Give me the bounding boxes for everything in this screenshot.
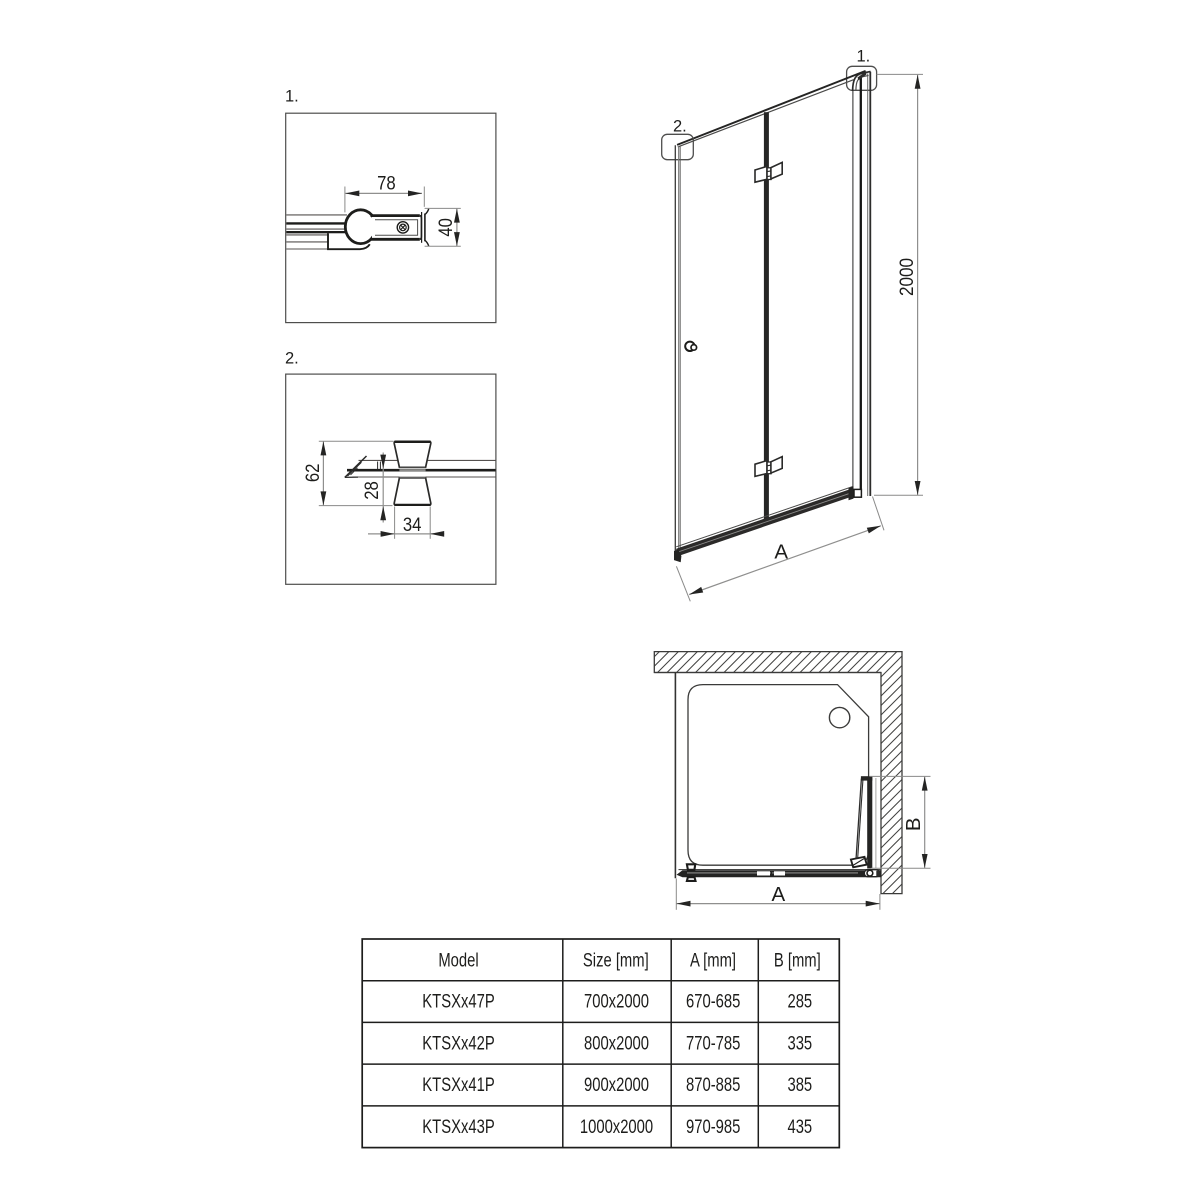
svg-text:2.: 2. [673,118,687,136]
svg-text:62: 62 [302,464,323,483]
svg-text:A: A [774,540,788,563]
svg-text:2.: 2. [285,350,299,368]
svg-text:Model: Model [438,950,478,971]
svg-text:1000x2000: 1000x2000 [580,1116,653,1137]
svg-text:B: B [902,817,925,831]
svg-text:335: 335 [787,1033,812,1054]
svg-text:435: 435 [787,1116,812,1137]
svg-text:970-985: 970-985 [686,1116,740,1137]
svg-text:1.: 1. [857,48,871,66]
svg-text:Size [mm]: Size [mm] [583,950,649,971]
svg-text:700x2000: 700x2000 [584,991,649,1012]
svg-text:KTSXx43P: KTSXx43P [422,1116,494,1137]
svg-text:385: 385 [787,1074,812,1095]
svg-text:28: 28 [361,481,382,500]
svg-text:KTSXx42P: KTSXx42P [422,1033,494,1054]
svg-text:770-785: 770-785 [686,1033,740,1054]
svg-text:A: A [771,883,785,906]
svg-text:670-685: 670-685 [686,991,740,1012]
svg-text:78: 78 [377,172,396,193]
svg-text:870-885: 870-885 [686,1074,740,1095]
svg-text:2000: 2000 [896,258,917,296]
svg-text:1.: 1. [285,88,299,106]
svg-text:A [mm]: A [mm] [690,950,736,971]
svg-text:KTSXx41P: KTSXx41P [422,1074,494,1095]
svg-text:B [mm]: B [mm] [774,950,821,971]
svg-text:900x2000: 900x2000 [584,1074,649,1095]
svg-text:40: 40 [435,218,456,237]
svg-text:800x2000: 800x2000 [584,1033,649,1054]
svg-text:285: 285 [787,991,812,1012]
svg-text:34: 34 [403,514,422,535]
svg-text:KTSXx47P: KTSXx47P [422,991,494,1012]
